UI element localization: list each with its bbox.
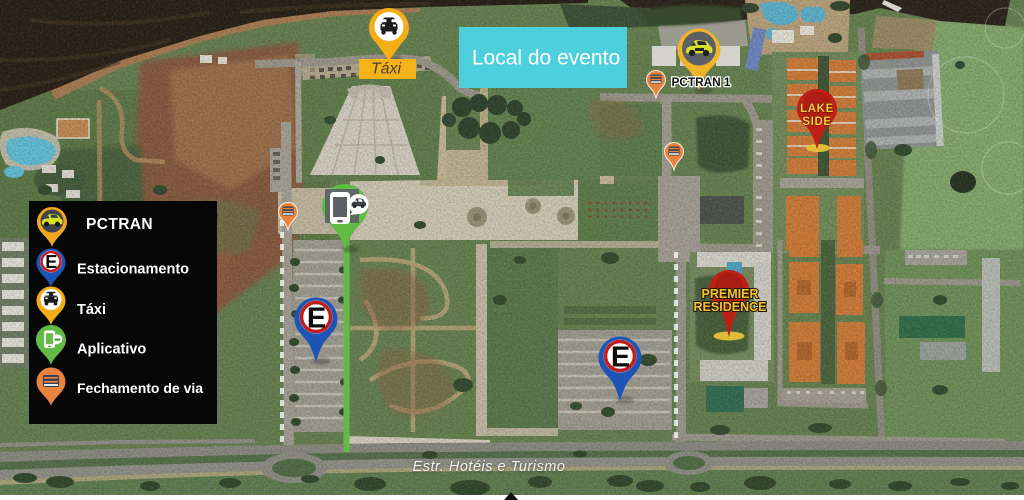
svg-text:E: E <box>45 252 57 272</box>
svg-text:E: E <box>611 342 630 374</box>
svg-text:PREMIER: PREMIER <box>702 287 759 301</box>
svg-text:Táxi: Táxi <box>371 61 402 78</box>
svg-text:Estacionamento: Estacionamento <box>77 262 189 278</box>
svg-text:PCTRAN: PCTRAN <box>86 216 153 233</box>
svg-text:E: E <box>307 303 326 335</box>
svg-text:LAKE: LAKE <box>800 103 834 115</box>
svg-text:Táxi: Táxi <box>77 302 106 318</box>
svg-text:Aplicativo: Aplicativo <box>77 342 146 358</box>
svg-text:Fechamento de via: Fechamento de via <box>77 380 203 396</box>
svg-text:Estr. Hotéis e Turismo: Estr. Hotéis e Turismo <box>413 459 566 475</box>
svg-text:RESIDENCE: RESIDENCE <box>694 300 767 314</box>
svg-text:Local do evento: Local do evento <box>472 47 620 70</box>
svg-text:SIDE: SIDE <box>802 116 831 128</box>
svg-text:PCTRAN 1: PCTRAN 1 <box>672 75 731 89</box>
